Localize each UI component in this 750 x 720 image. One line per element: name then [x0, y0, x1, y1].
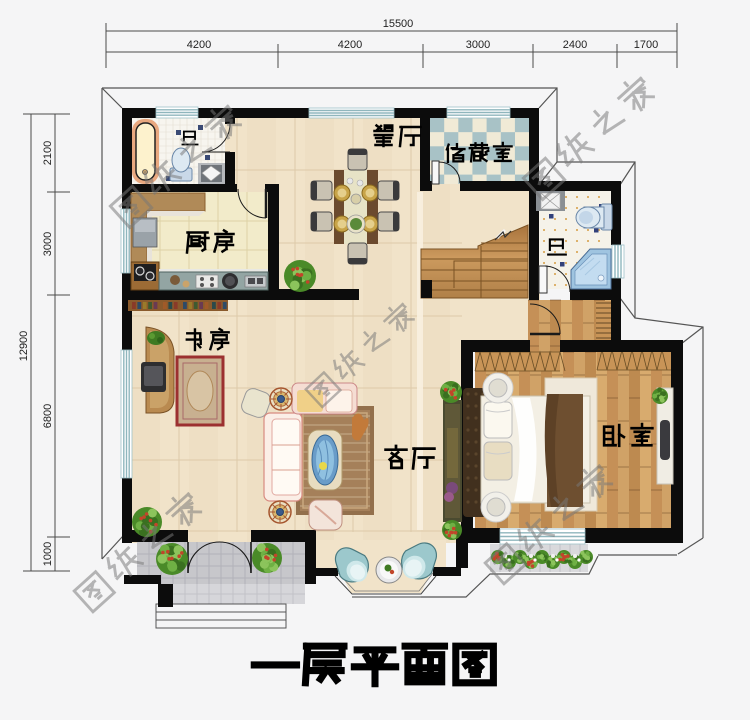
svg-text:6800: 6800	[42, 404, 54, 428]
svg-text:2100: 2100	[42, 141, 54, 165]
svg-text:1000: 1000	[42, 542, 54, 566]
svg-text:1700: 1700	[634, 39, 658, 51]
svg-text:3000: 3000	[42, 232, 54, 256]
svg-text:15500: 15500	[383, 18, 414, 30]
svg-text:12900: 12900	[18, 331, 30, 362]
svg-text:4200: 4200	[187, 39, 211, 51]
svg-text:2400: 2400	[563, 39, 587, 51]
svg-text:3000: 3000	[466, 39, 490, 51]
svg-text:4200: 4200	[338, 39, 362, 51]
